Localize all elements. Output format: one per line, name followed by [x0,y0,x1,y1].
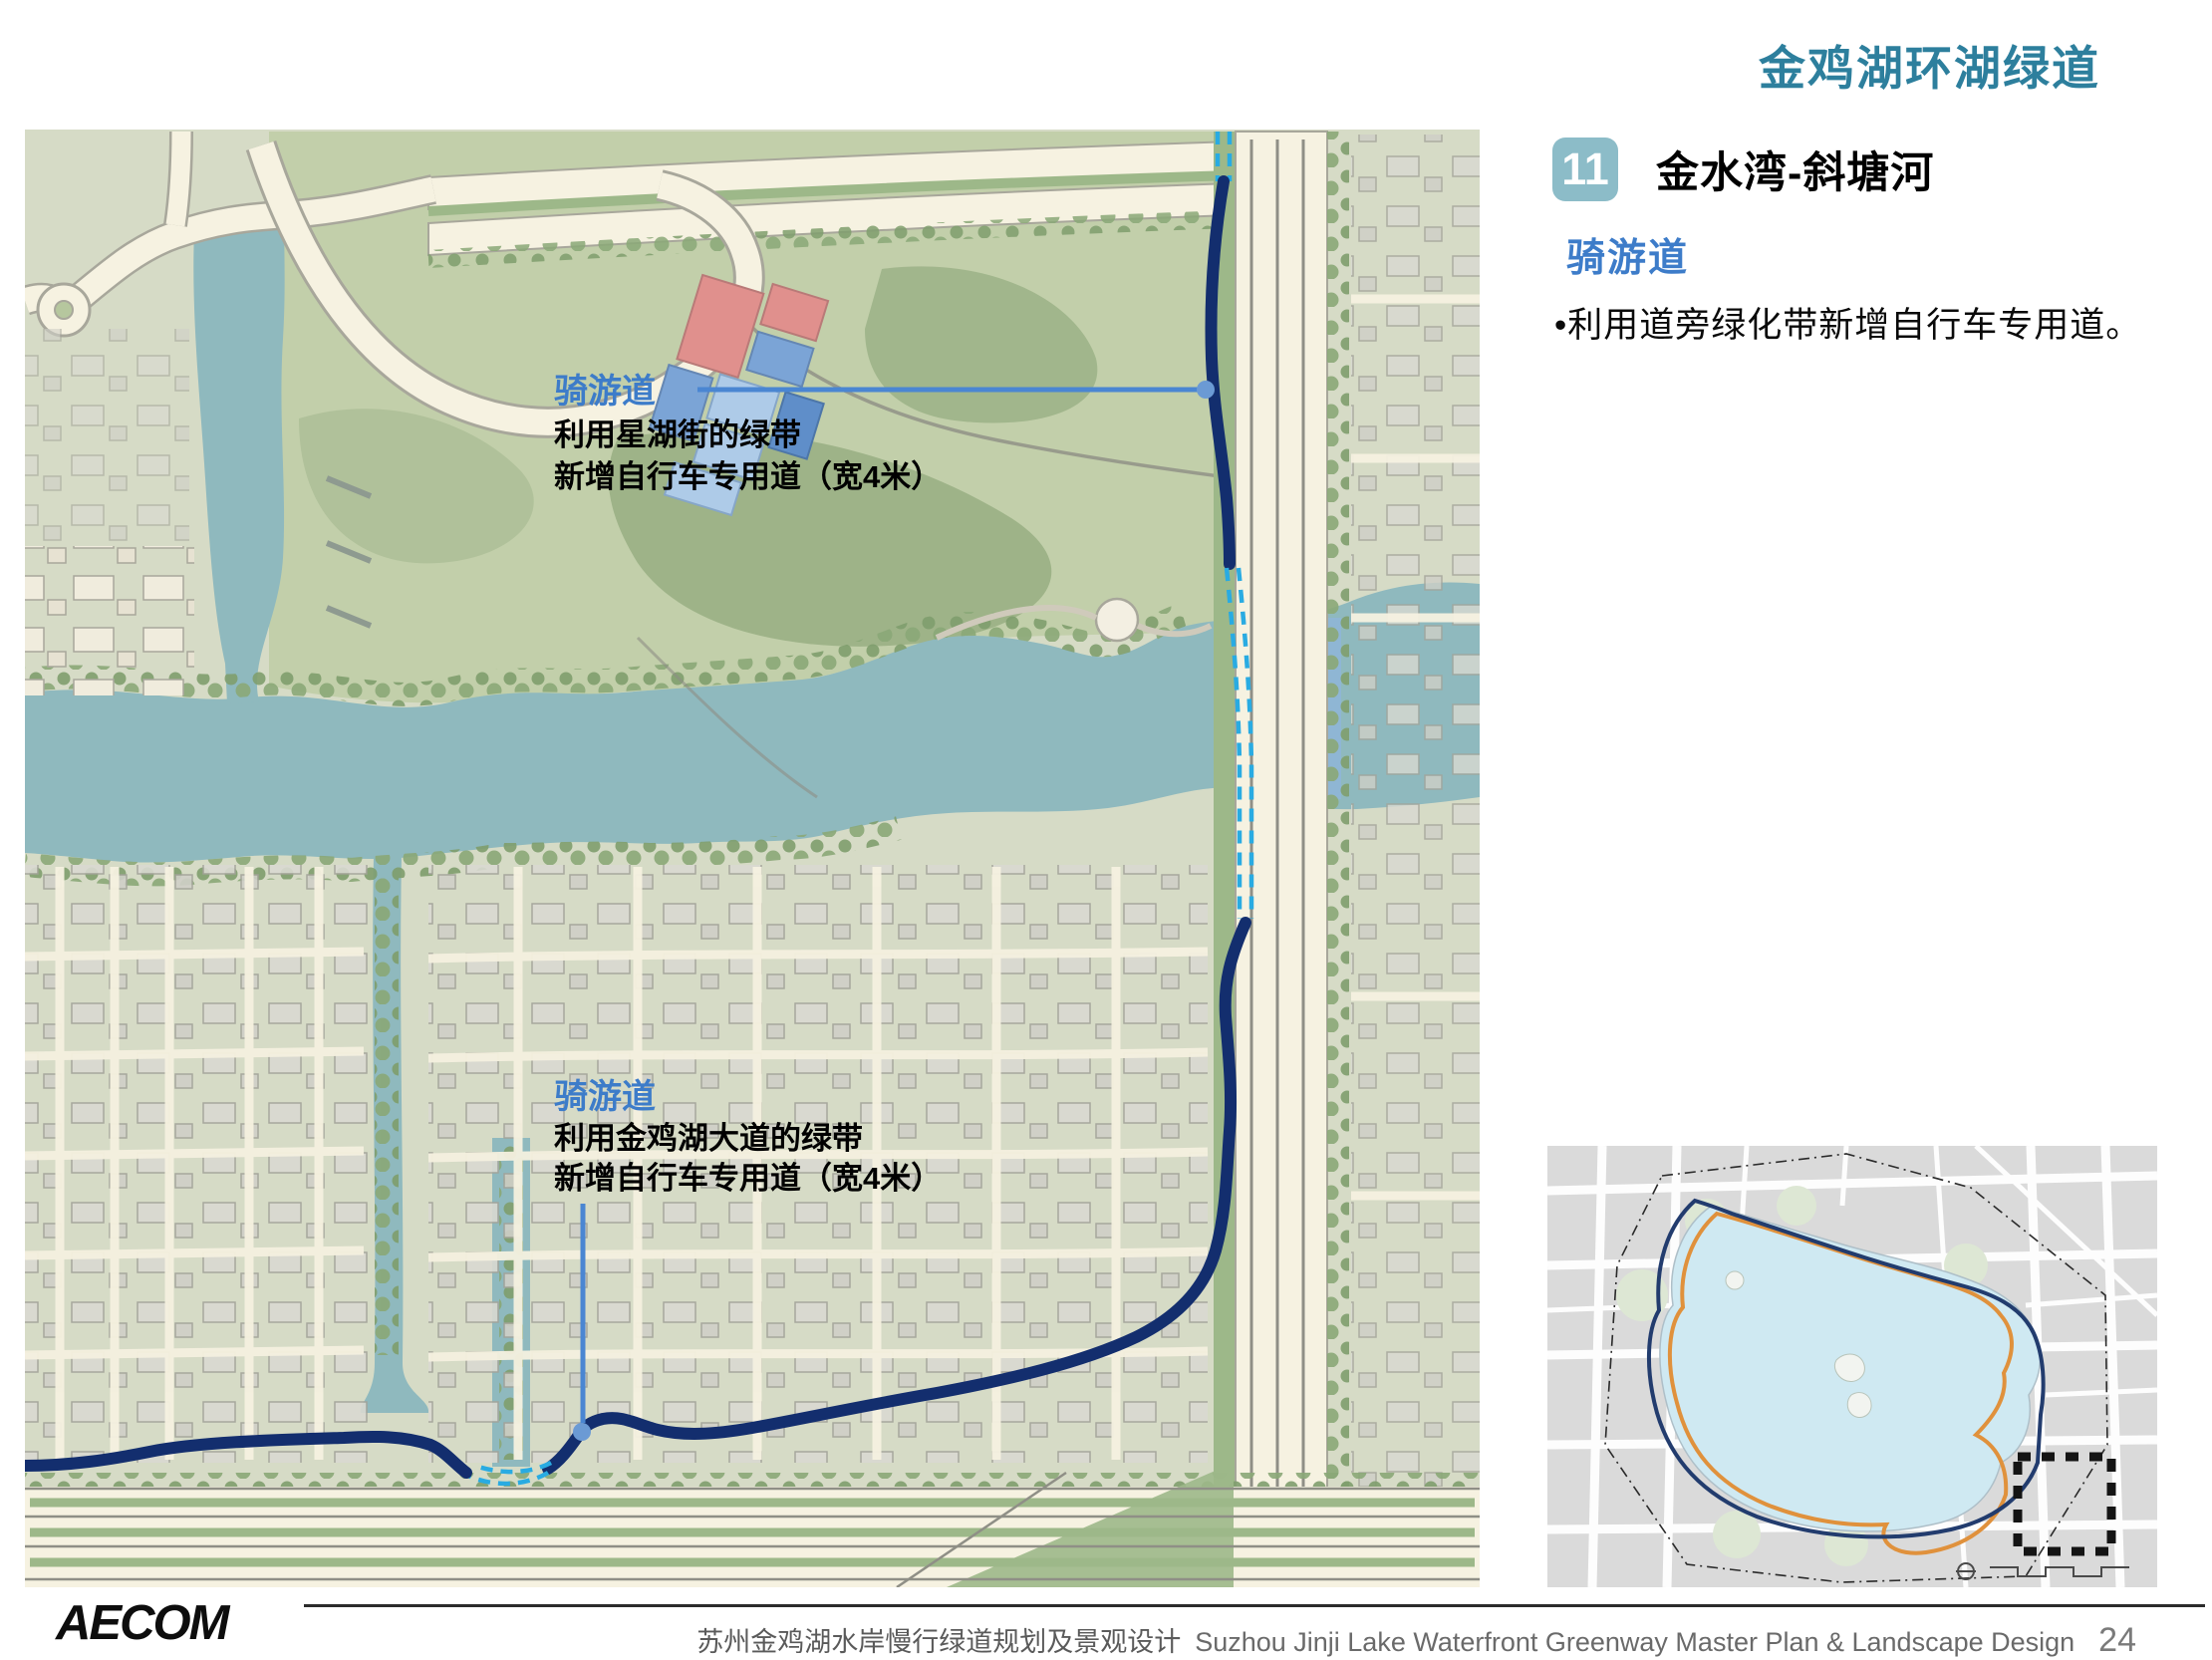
page-title: 金鸡湖环湖绿道 [1759,30,2100,99]
section-header: 11 金水湾-斜塘河 [1552,138,1934,201]
inset-locator-map [1547,1146,2157,1587]
shore-plaza [1096,599,1138,641]
annotation-line: 利用星湖街的绿带 [554,417,801,452]
callout-dot [1197,381,1215,399]
footer-title-en: Suzhou Jinji Lake Waterfront Greenway Ma… [1195,1627,2074,1658]
footer-divider [304,1604,2205,1607]
page-number: 24 [2098,1621,2136,1660]
annotation-line: 新增自行车专用道（宽4米） [554,459,942,494]
section-number-badge: 11 [1552,138,1618,201]
annotation-label: 骑游道 [554,373,656,411]
callout-dot [573,1423,591,1441]
annotation-line: 新增自行车专用道（宽4米） [554,1161,942,1196]
footer-title-cn: 苏州金鸡湖水岸慢行绿道规划及景观设计 [696,1620,1181,1659]
footer: 苏州金鸡湖水岸慢行绿道规划及景观设计 Suzhou Jinji Lake Wat… [696,1620,2136,1660]
aecom-logo: AECOM [56,1595,227,1651]
bullet-item: •利用道旁绿化带新增自行车专用道。 [1554,297,2172,348]
main-aerial-map: 骑游道 利用星湖街的绿带 新增自行车专用道（宽4米） 骑游道 利用金鸡湖大道的绿… [25,130,1480,1587]
annotation-line: 利用金鸡湖大道的绿带 [554,1121,863,1156]
annotation-label: 骑游道 [554,1078,656,1116]
section-title: 金水湾-斜塘河 [1656,138,1934,200]
bottom-highway [25,1463,1480,1587]
category-label: 骑游道 [1566,227,1689,283]
arterial-corridor [1214,132,1349,1587]
